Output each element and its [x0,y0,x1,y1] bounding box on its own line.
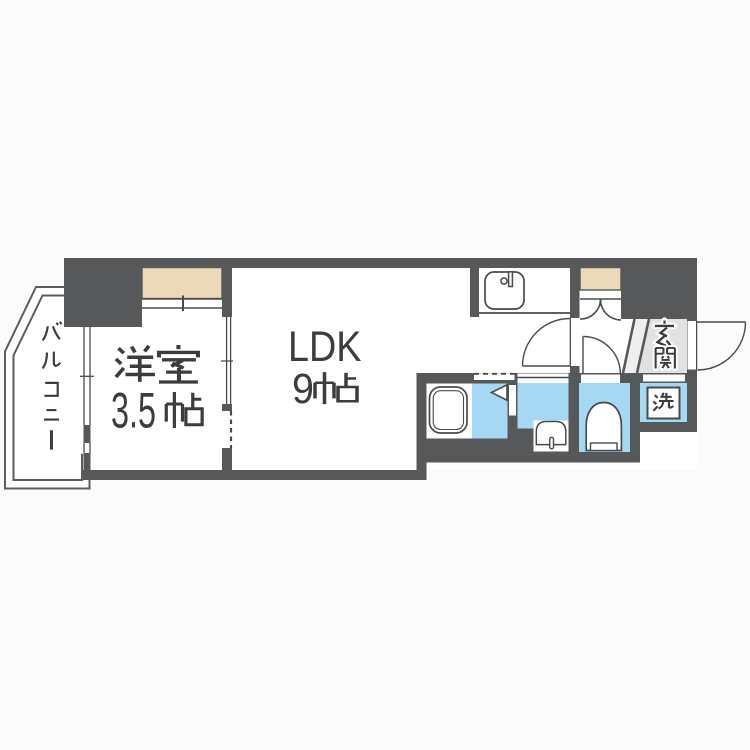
svg-text:9: 9 [292,365,314,413]
svg-text:3.5: 3.5 [111,383,156,439]
svg-text:LDK: LDK [288,323,362,371]
